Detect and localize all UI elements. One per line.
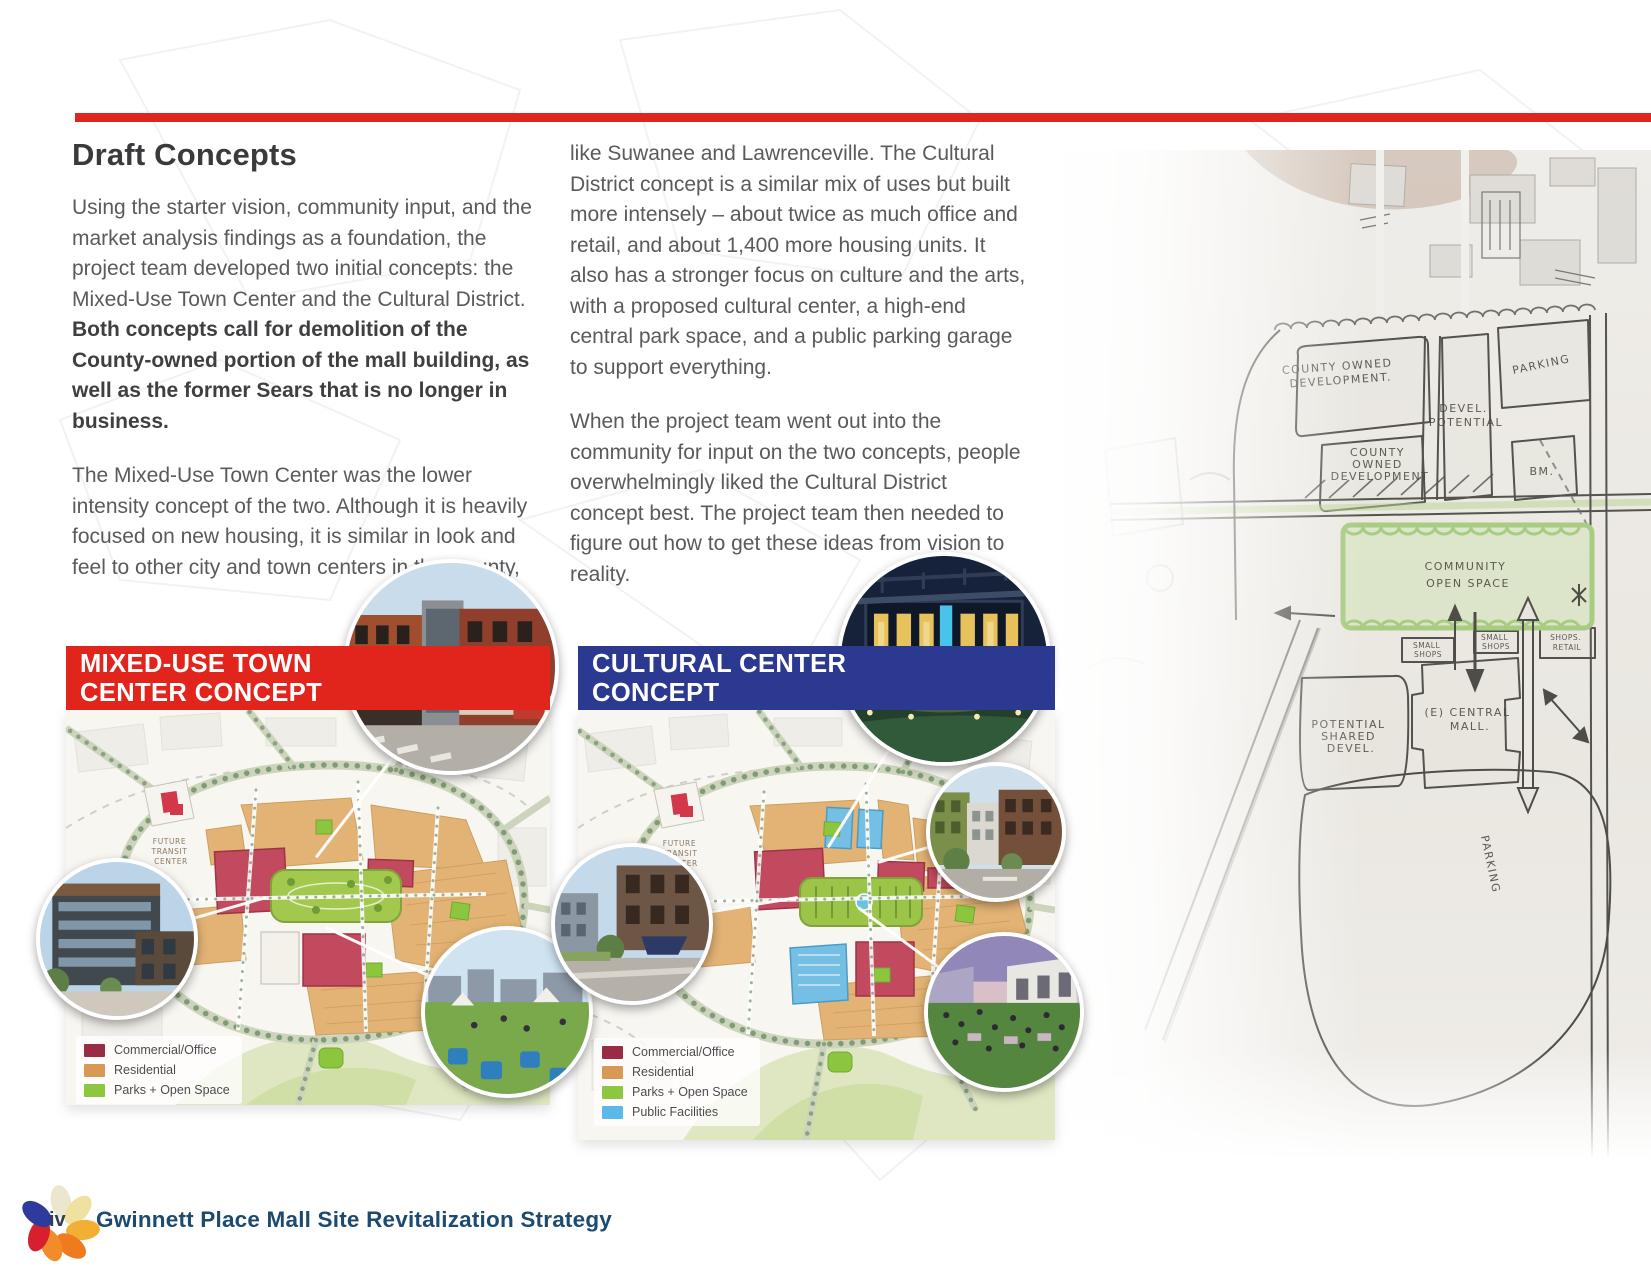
svg-text:SMALL SHOPS: SMALL SHOPS [1413, 641, 1443, 659]
legend-label: Parks + Open Space [114, 1083, 230, 1097]
legend-item: Commercial/Office [84, 1043, 230, 1057]
legend-label: Public Facilities [632, 1105, 718, 1119]
document-page: COUNTY OWNED DEVELOPMENT. PARKING DEVEL.… [0, 0, 1651, 1275]
legend-swatch-commercial [602, 1046, 623, 1059]
legend-swatch-residential [84, 1064, 105, 1077]
concept-sketch-photo: COUNTY OWNED DEVELOPMENT. PARKING DEVEL.… [1050, 150, 1651, 1160]
paragraph-intro-normal: Using the starter vision, community inpu… [72, 196, 532, 311]
legend-item: Public Facilities [602, 1105, 748, 1119]
sketch-label-parking-lower: PARKING [1478, 834, 1503, 894]
photo-inset-residential-street [551, 843, 713, 1005]
legend-swatch-parks [84, 1084, 105, 1097]
legend-swatch-commercial [84, 1044, 105, 1057]
legend-swatch-parks [602, 1086, 623, 1099]
photo-inset-urban-street [926, 762, 1066, 902]
sketch-label-small-shops-1: SMALL [1413, 641, 1441, 650]
hand-drawn-plan-sketch: COUNTY OWNED DEVELOPMENT. PARKING DEVEL.… [1050, 150, 1651, 1160]
map-annotation-transit: FUTURE [663, 839, 696, 848]
sketch-label-community-open-space: COMMUNITY [1425, 560, 1507, 573]
text-column-middle: like Suwanee and Lawrenceville. The Cult… [570, 139, 1026, 614]
sketch-label-shops-retail: SHOPS. [1550, 633, 1581, 642]
svg-text:DEVEL. POTENTIAL: DEVEL. POTENTIAL [1429, 402, 1503, 429]
sketch-label-bm: BM. [1529, 465, 1554, 478]
paragraph-intro-bold: Both concepts call for demolition of the… [72, 318, 529, 433]
mixed-use-banner: MIXED-USE TOWN CENTER CONCEPT [66, 646, 550, 710]
legend-item: Parks + Open Space [602, 1085, 748, 1099]
sketch-label-central-mall: (E) CENTRAL [1425, 706, 1511, 719]
map-annotation-transit: FUTURE [153, 837, 186, 846]
legend-label: Parks + Open Space [632, 1085, 748, 1099]
mixed-use-concept-card: FUTURE TRANSIT CENTER MIXED-USE TOWN CEN… [66, 646, 550, 1105]
legend-label: Residential [114, 1063, 176, 1077]
svg-text:SHOPS. RETAIL: SHOPS. RETAIL [1550, 633, 1584, 652]
text-column-left: Draft Concepts Using the starter vision,… [72, 137, 540, 607]
top-accent-rule [75, 113, 1651, 122]
legend-item: Parks + Open Space [84, 1083, 230, 1097]
sketch-label-small-shops-2: SMALL [1481, 633, 1509, 642]
cultural-concept-card: FUTURE TRANSIT CENTER CULTURAL CENTER CO… [578, 646, 1055, 1140]
svg-text:SMALL SHOPS: SMALL SHOPS [1481, 633, 1511, 651]
page-number: iv [49, 1209, 66, 1232]
legend-swatch-residential [602, 1066, 623, 1079]
legend-item: Residential [84, 1063, 230, 1077]
paragraph-cultural-district: like Suwanee and Lawrenceville. The Cult… [570, 139, 1026, 383]
mixed-use-legend: Commercial/Office Residential Parks + Op… [76, 1036, 242, 1104]
sketch-label-devel-potential: DEVEL. [1439, 402, 1488, 415]
paragraph-intro: Using the starter vision, community inpu… [72, 193, 540, 437]
legend-label: Commercial/Office [114, 1043, 217, 1057]
photo-inset-apartment-building [36, 858, 198, 1020]
cultural-legend: Commercial/Office Residential Parks + Op… [594, 1038, 760, 1126]
photo-inset-evening-event-lawn [924, 932, 1084, 1092]
legend-swatch-public-facilities [602, 1106, 623, 1119]
svg-text:BM.: BM. [1529, 465, 1554, 478]
page-title: Draft Concepts [72, 137, 540, 173]
cultural-banner: CULTURAL CENTER CONCEPT [578, 646, 1055, 710]
legend-item: Residential [602, 1065, 748, 1079]
svg-text:FUTURE TRANSIT: FUTURE TRANSIT CENTER [151, 837, 191, 866]
cultural-banner-label: CULTURAL CENTER CONCEPT [592, 650, 872, 708]
legend-label: Commercial/Office [632, 1045, 735, 1059]
mixed-use-banner-label: MIXED-USE TOWN CENTER CONCEPT [80, 650, 410, 708]
legend-item: Commercial/Office [602, 1045, 748, 1059]
footer-document-title: Gwinnett Place Mall Site Revitalization … [96, 1207, 612, 1233]
legend-label: Residential [632, 1065, 694, 1079]
svg-text:PARKING: PARKING [1478, 834, 1503, 894]
